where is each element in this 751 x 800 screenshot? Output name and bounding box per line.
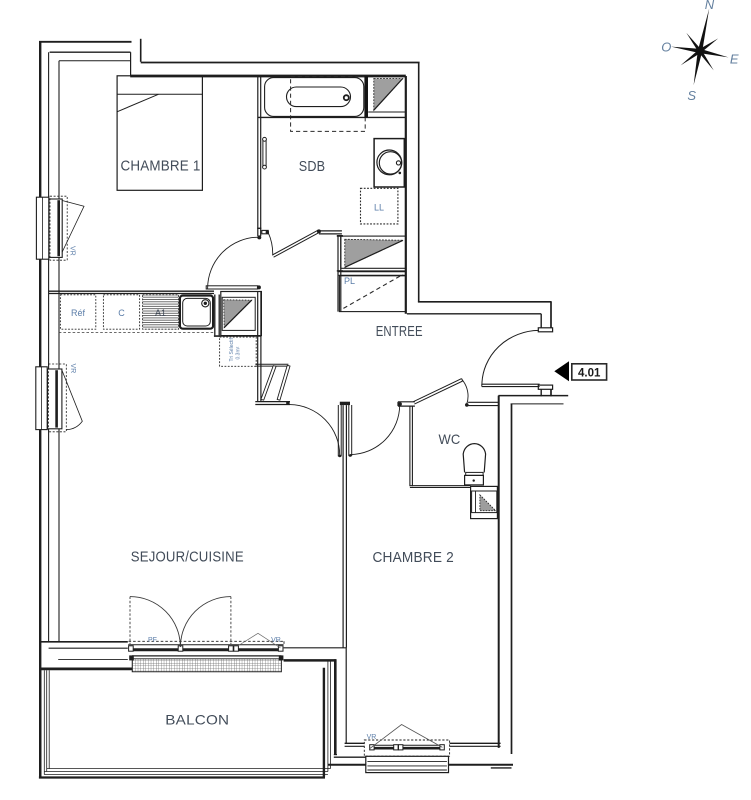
svg-text:0.3m²: 0.3m² — [236, 346, 242, 359]
svg-text:A1: A1 — [155, 308, 166, 318]
svg-text:CHAMBRE 1: CHAMBRE 1 — [121, 159, 201, 175]
svg-text:E: E — [730, 52, 739, 67]
svg-text:BALCON: BALCON — [165, 712, 229, 728]
svg-text:PF: PF — [148, 637, 157, 644]
svg-text:VR: VR — [69, 246, 76, 256]
svg-text:SEJOUR/CUISINE: SEJOUR/CUISINE — [131, 550, 244, 566]
svg-text:SDB: SDB — [299, 159, 326, 175]
svg-text:PL: PL — [344, 276, 355, 286]
svg-text:VR: VR — [69, 364, 76, 374]
svg-text:VR: VR — [367, 734, 377, 741]
svg-text:4.01: 4.01 — [578, 367, 601, 379]
svg-text:LL: LL — [374, 203, 384, 213]
svg-text:C: C — [118, 308, 125, 318]
svg-text:N: N — [705, 0, 715, 12]
svg-text:CHAMBRE 2: CHAMBRE 2 — [372, 550, 454, 566]
svg-text:Réf: Réf — [71, 308, 86, 318]
svg-text:Tri Sélectif: Tri Sélectif — [229, 337, 235, 361]
svg-text:WC: WC — [439, 431, 461, 447]
svg-text:S: S — [687, 88, 696, 103]
svg-text:ENTREE: ENTREE — [376, 324, 423, 340]
svg-text:O: O — [661, 40, 671, 55]
